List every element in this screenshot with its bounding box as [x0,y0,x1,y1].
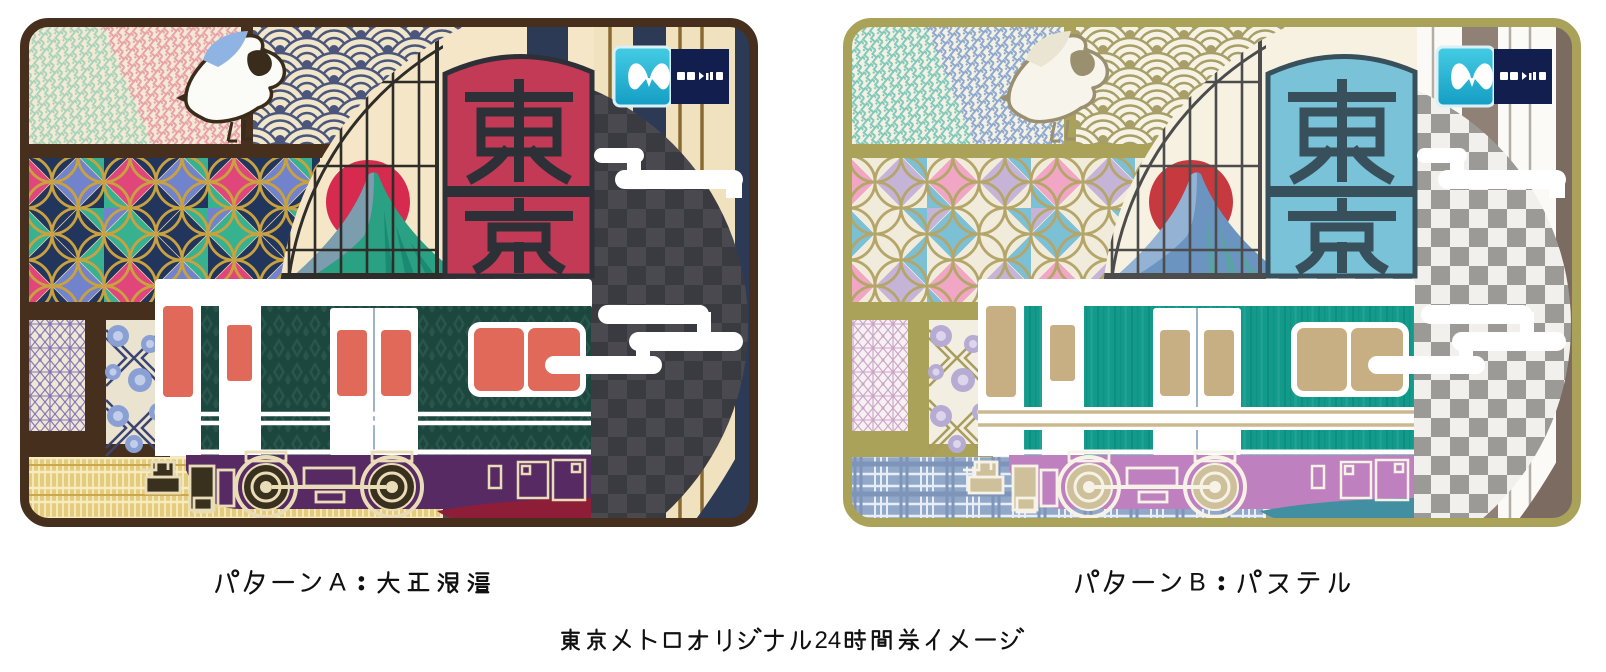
svg-text:A: A [329,569,346,597]
svg-text:24: 24 [815,627,842,654]
svg-text:B: B [1189,569,1206,597]
